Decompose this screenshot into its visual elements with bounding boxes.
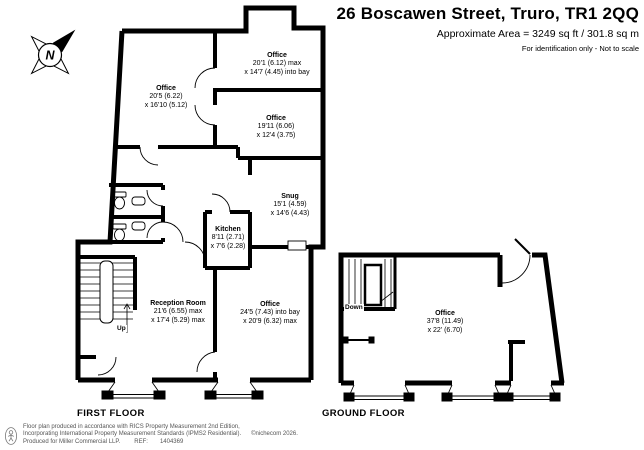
staircase-up: [80, 261, 133, 333]
approximate-area: Approximate Area = 3249 sq ft / 301.8 sq…: [336, 28, 639, 40]
copyright: ©nichecom 2026.: [251, 431, 298, 437]
floor-plan-drawing: N: [0, 0, 644, 450]
floor-plan-page: N: [0, 0, 644, 450]
bay-window: [442, 385, 503, 401]
nichecom-logo-icon: [3, 424, 19, 448]
entrance-door-arc: [502, 255, 530, 283]
footer-line-2: Incorporating International Property Mea…: [23, 431, 298, 438]
footer: Floor plan produced in accordance with R…: [3, 424, 298, 448]
page-title: 26 Boscawen Street, Truro, TR1 2QQ: [336, 4, 639, 24]
partition: [343, 337, 374, 343]
toilet-icon: [113, 224, 126, 241]
room-label-office-ground: Office 37'8 (11.49) x 22' (6.70): [427, 310, 464, 335]
room-label-reception-room: Reception Room 21'6 (6.55) max x 17'4 (5…: [150, 300, 206, 325]
ref-label: REF:: [134, 439, 148, 445]
ground-floor-caption: GROUND FLOOR: [322, 408, 405, 419]
bay-window: [205, 382, 263, 399]
footer-line-3: Produced for Miller Commercial LLP.REF:1…: [23, 439, 298, 446]
room-label-office-3: Office 19'11 (6.06) x 12'4 (3.75): [257, 115, 296, 140]
disclaimer: For identification only - Not to scale: [336, 44, 639, 53]
header: 26 Boscawen Street, Truro, TR1 2QQ Appro…: [336, 4, 639, 53]
footer-text: Floor plan produced in accordance with R…: [23, 424, 298, 446]
stairs-down-label: Down: [344, 304, 364, 311]
room-label-office-2: Office 20'1 (6.12) max x 14'7 (4.45) int…: [244, 52, 309, 77]
compass-icon: N: [32, 31, 74, 73]
staircase-down: [349, 259, 393, 307]
bay-window: [504, 385, 560, 401]
compass-north-label: N: [45, 49, 55, 63]
room-label-kitchen: Kitchen 8'11 (2.71) x 7'6 (2.28): [211, 226, 246, 251]
room-label-office-4: Office 24'5 (7.43) into bay x 20'9 (6.32…: [240, 301, 300, 326]
hearth: [288, 241, 306, 250]
stairs-up-label: Up: [116, 325, 127, 332]
ref-number: 1404369: [160, 439, 183, 445]
room-label-snug: Snug 15'1 (4.59) x 14'6 (4.43): [271, 193, 310, 218]
room-label-office-1: Office 20'5 (6.22) x 16'10 (5.12): [145, 85, 188, 110]
bay-window: [344, 385, 414, 401]
entrance-door-leaf: [515, 239, 530, 254]
bay-window: [102, 382, 165, 399]
sink-icon: [132, 222, 145, 230]
first-floor-caption: FIRST FLOOR: [77, 408, 145, 419]
sink-icon: [132, 197, 145, 205]
